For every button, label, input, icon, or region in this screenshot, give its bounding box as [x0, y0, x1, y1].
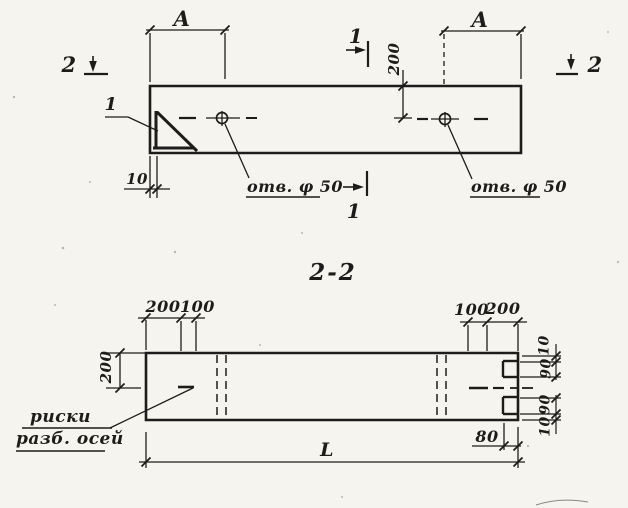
dim-a-right-label: A — [470, 9, 490, 30]
plan-beam-outline — [150, 86, 521, 153]
dim-a-left-label: A — [172, 8, 192, 29]
sec-dim-tl-200-label: 200 — [145, 299, 181, 315]
hole-label-right: отв. φ 50 — [471, 179, 541, 195]
axis-note-line1: риски — [30, 409, 90, 426]
plan-hole-right — [417, 112, 488, 127]
section-notch-bottom — [503, 397, 517, 414]
sec-dim-left-200-label: 200 — [99, 350, 115, 384]
sec-dim-right-10-bottom-label: 10 — [539, 410, 554, 444]
plan-dim-a-left — [146, 26, 230, 83]
section-dim-top-right — [460, 318, 527, 352]
drawing-sheet: A A 200 1 1 2 2 1 10 отв. φ 50 отв. φ 50… — [0, 0, 628, 508]
sec-dim-right-90-top-label: 90 — [540, 352, 555, 386]
section-title: 2-2 — [305, 261, 361, 284]
section-1-top-label: 1 — [348, 26, 364, 46]
section-hidden-hole-left — [217, 355, 226, 419]
plan-hole-left — [179, 111, 257, 126]
sec-dim-length-label: L — [315, 441, 339, 460]
section-notch-top — [503, 361, 517, 377]
section-mark-2-left — [84, 56, 108, 74]
section-2-right-label: 2 — [586, 54, 604, 75]
section-hidden-hole-right — [437, 355, 446, 419]
scan-stray-curve — [536, 500, 588, 505]
section-mark-2-right — [556, 54, 578, 74]
section-mark-1-bottom — [343, 171, 367, 196]
axis-note-line2: разб. осей — [16, 431, 108, 448]
sec-dim-80-label: 80 — [475, 429, 499, 445]
plan-view — [84, 26, 578, 199]
dim-200-label: 200 — [387, 42, 403, 76]
detail-mark-label: 1 — [104, 96, 118, 114]
sec-dim-tr-200-label: 200 — [485, 301, 521, 317]
dim-10-label: 10 — [126, 172, 148, 187]
section-2-left-label: 2 — [60, 54, 78, 75]
sec-dim-tr-100-label: 100 — [454, 302, 484, 318]
plan-dim-a-right — [440, 27, 526, 85]
section-1-bottom-label: 1 — [346, 201, 362, 221]
section-dim-top-left — [138, 314, 205, 352]
plan-dim-200 — [394, 70, 412, 123]
sec-dim-tl-100-label: 100 — [180, 299, 210, 315]
section-beam-outline — [146, 353, 518, 420]
hole-label-left: отв. φ 50 — [247, 179, 321, 195]
